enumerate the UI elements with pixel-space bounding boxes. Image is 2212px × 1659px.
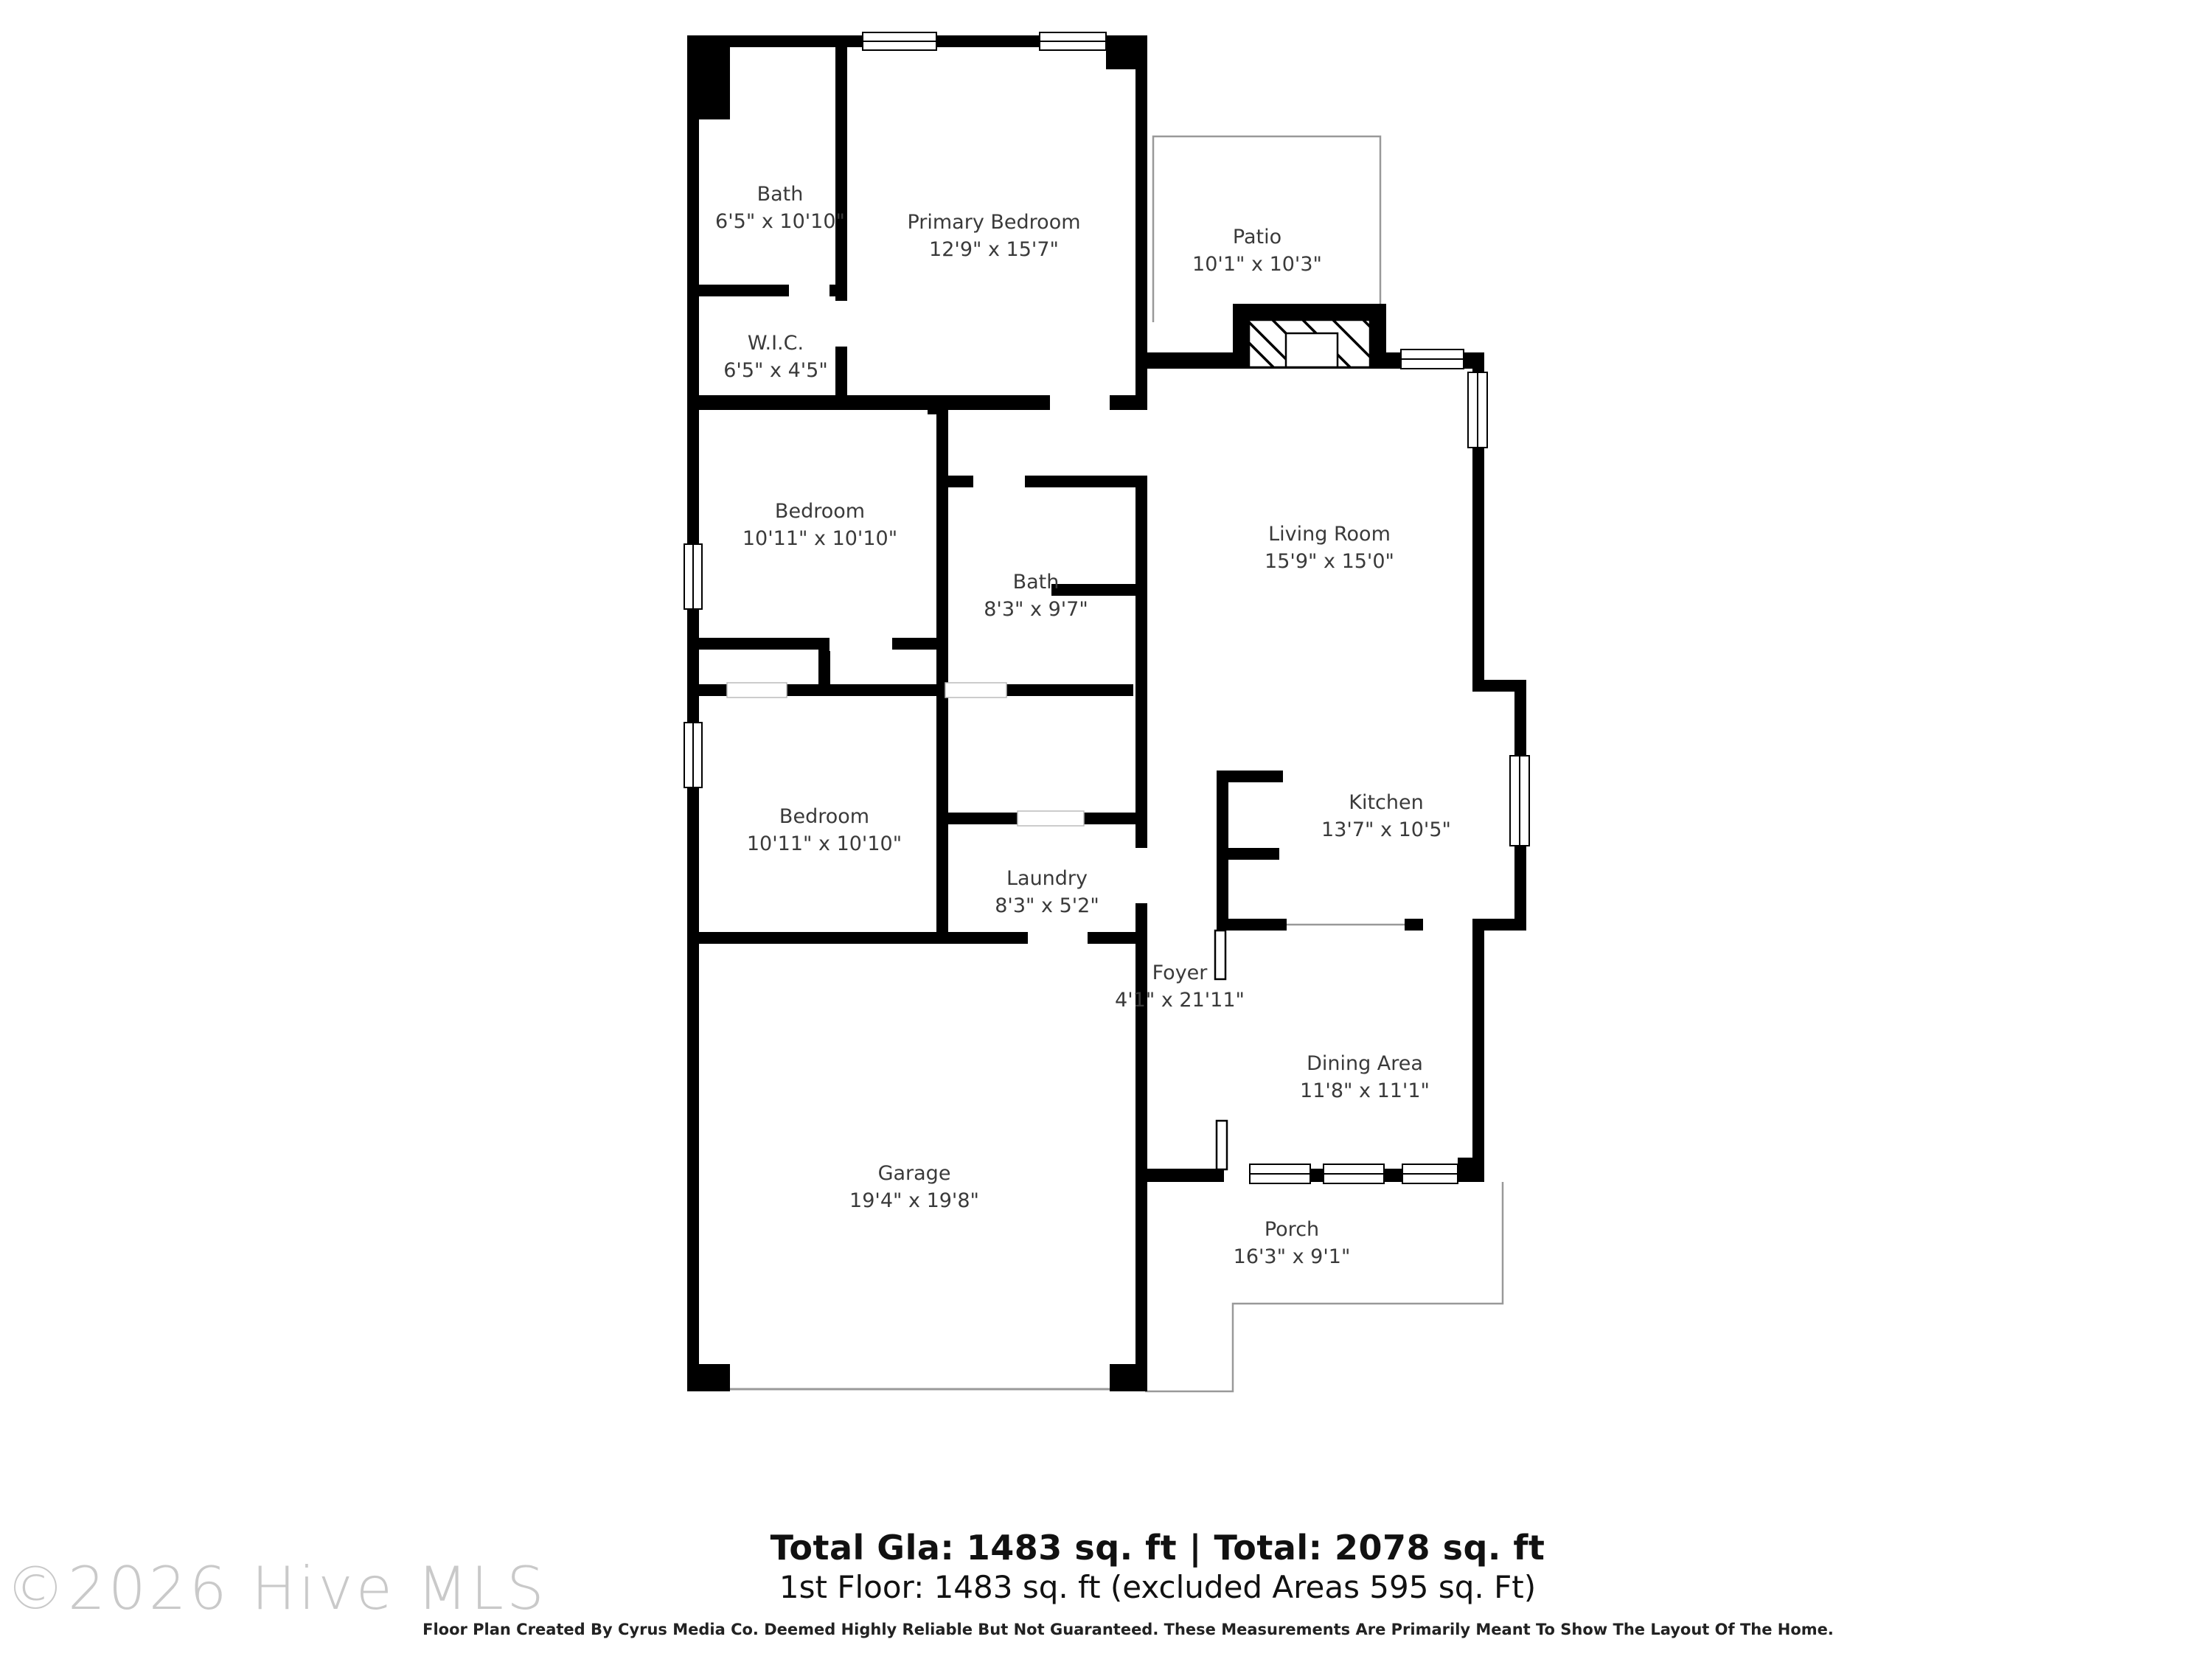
floorplan-canvas: Bath 6'5" x 10'10" Primary Bedroom 12'9"…	[0, 0, 2212, 1659]
room-label-foyer: Foyer 4'1" x 21'11"	[1115, 959, 1245, 1014]
room-label-dining-area: Dining Area 11'8" x 11'1"	[1300, 1050, 1430, 1105]
door-openings	[789, 283, 1250, 1183]
room-label-living-room: Living Room 15'9" x 15'0"	[1265, 521, 1394, 575]
room-label-wic: W.I.C. 6'5" x 4'5"	[723, 330, 828, 384]
room-label-patio: Patio 10'1" x 10'3"	[1192, 223, 1322, 278]
wall-layer	[687, 35, 1526, 1391]
room-label-porch: Porch 16'3" x 9'1"	[1234, 1216, 1351, 1270]
room-label-bath-primary: Bath 6'5" x 10'10"	[715, 181, 845, 235]
floorplan-drawing	[0, 0, 2212, 1659]
room-label-kitchen: Kitchen 13'7" x 10'5"	[1321, 789, 1451, 844]
mls-watermark: ©2026 Hive MLS	[6, 1554, 547, 1623]
disclaimer-text: Floor Plan Created By Cyrus Media Co. De…	[0, 1621, 2212, 1638]
fireplace-icon	[1233, 304, 1386, 369]
room-label-bedroom-lower: Bedroom 10'11" x 10'10"	[747, 803, 902, 858]
room-label-bath-hall: Bath 8'3" x 9'7"	[984, 568, 1088, 623]
room-label-garage: Garage 19'4" x 19'8"	[849, 1160, 979, 1214]
room-label-primary-bedroom: Primary Bedroom 12'9" x 15'7"	[907, 209, 1080, 263]
room-label-laundry: Laundry 8'3" x 5'2"	[995, 865, 1099, 919]
porch-outline	[1145, 1182, 1503, 1391]
room-label-bedroom-upper: Bedroom 10'11" x 10'10"	[742, 498, 897, 552]
